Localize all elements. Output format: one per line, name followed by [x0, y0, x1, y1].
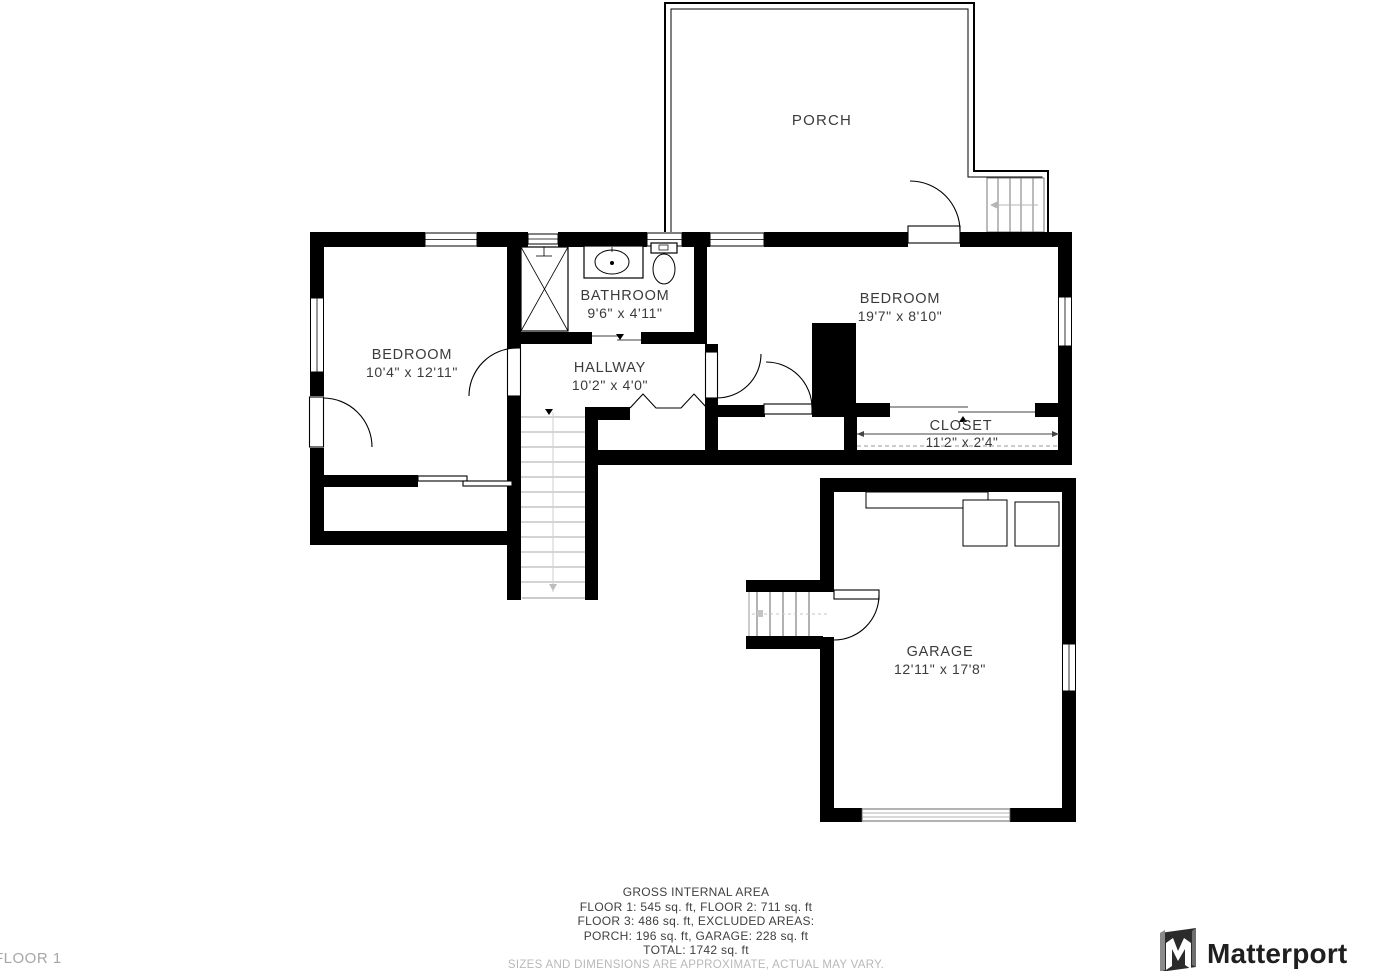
- door-panel: [310, 397, 324, 447]
- stairs-marker-icon: [757, 610, 763, 617]
- bathroom-label: BATHROOM: [580, 288, 669, 304]
- bedroom-right-rear-door: [764, 362, 812, 414]
- chimney: [812, 323, 856, 417]
- window: [1063, 644, 1076, 691]
- sliding-door: [418, 476, 512, 486]
- door-swing-arc: [766, 362, 812, 408]
- bedroom-left-hall-door: [469, 348, 521, 396]
- window: [710, 233, 764, 246]
- bedroom-left-label: BEDROOM: [372, 347, 453, 363]
- porch: PORCH: [665, 3, 1048, 243]
- door-swing-arc: [834, 595, 879, 640]
- main-floor-walls: [310, 232, 1072, 600]
- bedroom-right-label: BEDROOM: [860, 291, 941, 307]
- garage-label: GARAGE: [907, 644, 974, 660]
- bedroom-left-dims: 10'4" x 12'11": [366, 364, 458, 380]
- garage-door: [862, 809, 1010, 821]
- garage-dims: 12'11" x 17'8": [894, 661, 986, 677]
- porch-entry-door: [908, 181, 960, 243]
- dimension-arrow-icon: [857, 431, 864, 437]
- hallway-dims: 10'2" x 4'0": [572, 377, 648, 393]
- door-swing-arc: [717, 354, 761, 398]
- door-panel: [834, 590, 879, 599]
- closet-label: CLOSET: [930, 418, 993, 434]
- hall-bedroom-right-door: [706, 352, 762, 398]
- window: [1059, 297, 1072, 346]
- closet-dims: 11'2" x 2'4": [926, 435, 999, 450]
- area-summary-line2: FLOOR 3: 486 sq. ft, EXCLUDED AREAS:: [578, 914, 815, 928]
- sink-vanity: [584, 246, 643, 278]
- floor-plan-drawing: PORCH: [0, 0, 1390, 971]
- bedroom-right-dims: 19'7" x 8'10": [858, 308, 943, 324]
- area-summary-line1: FLOOR 1: 545 sq. ft, FLOOR 2: 711 sq. ft: [580, 900, 813, 914]
- disclaimer: SIZES AND DIMENSIONS ARE APPROXIMATE, AC…: [508, 959, 884, 971]
- area-summary: GROSS INTERNAL AREA FLOOR 1: 545 sq. ft,…: [508, 885, 884, 971]
- area-summary-title: GROSS INTERNAL AREA: [623, 885, 770, 899]
- matterport-logo: Matterport: [1160, 928, 1347, 971]
- hallway-label: HALLWAY: [574, 360, 646, 376]
- brand-name: Matterport: [1207, 938, 1347, 969]
- window: [311, 298, 324, 372]
- door-panel: [764, 404, 812, 414]
- stairs-direction-arrow-icon: [549, 584, 557, 591]
- area-summary-total: TOTAL: 1742 sq. ft: [643, 943, 749, 957]
- area-summary-line3: PORCH: 196 sq. ft, GARAGE: 228 sq. ft: [584, 929, 809, 943]
- garage-entry-stairs: [746, 580, 828, 649]
- accordion-opening: [630, 394, 707, 408]
- floor-plan-page: PORCH: [0, 0, 1390, 971]
- door-panel: [508, 348, 521, 396]
- porch-wall-inner: [671, 9, 1042, 232]
- window: [425, 233, 477, 246]
- storage-box: [963, 500, 1007, 546]
- door-swing-arc: [910, 181, 960, 231]
- door-panel: [706, 352, 718, 398]
- porch-steps: [987, 178, 1044, 232]
- shower: [521, 247, 568, 331]
- window: [528, 234, 558, 244]
- door-swing-arc: [323, 398, 372, 447]
- matterport-mark-icon: [1160, 928, 1196, 971]
- bathroom-dims: 9'6" x 4'11": [587, 305, 662, 321]
- storage-box: [1015, 502, 1059, 546]
- stairs-down-tick-icon: [545, 409, 553, 415]
- dimension-arrow-icon: [1052, 431, 1059, 437]
- toilet: [651, 243, 677, 284]
- bedroom-left-exterior-door: [310, 397, 373, 447]
- door-panel: [908, 226, 960, 243]
- porch-label: PORCH: [792, 112, 852, 129]
- main-staircase: [521, 409, 585, 598]
- floor-indicator: FLOOR 1: [0, 950, 62, 967]
- bathroom-pocket-door: [592, 334, 641, 340]
- garage-side-door: [834, 590, 879, 640]
